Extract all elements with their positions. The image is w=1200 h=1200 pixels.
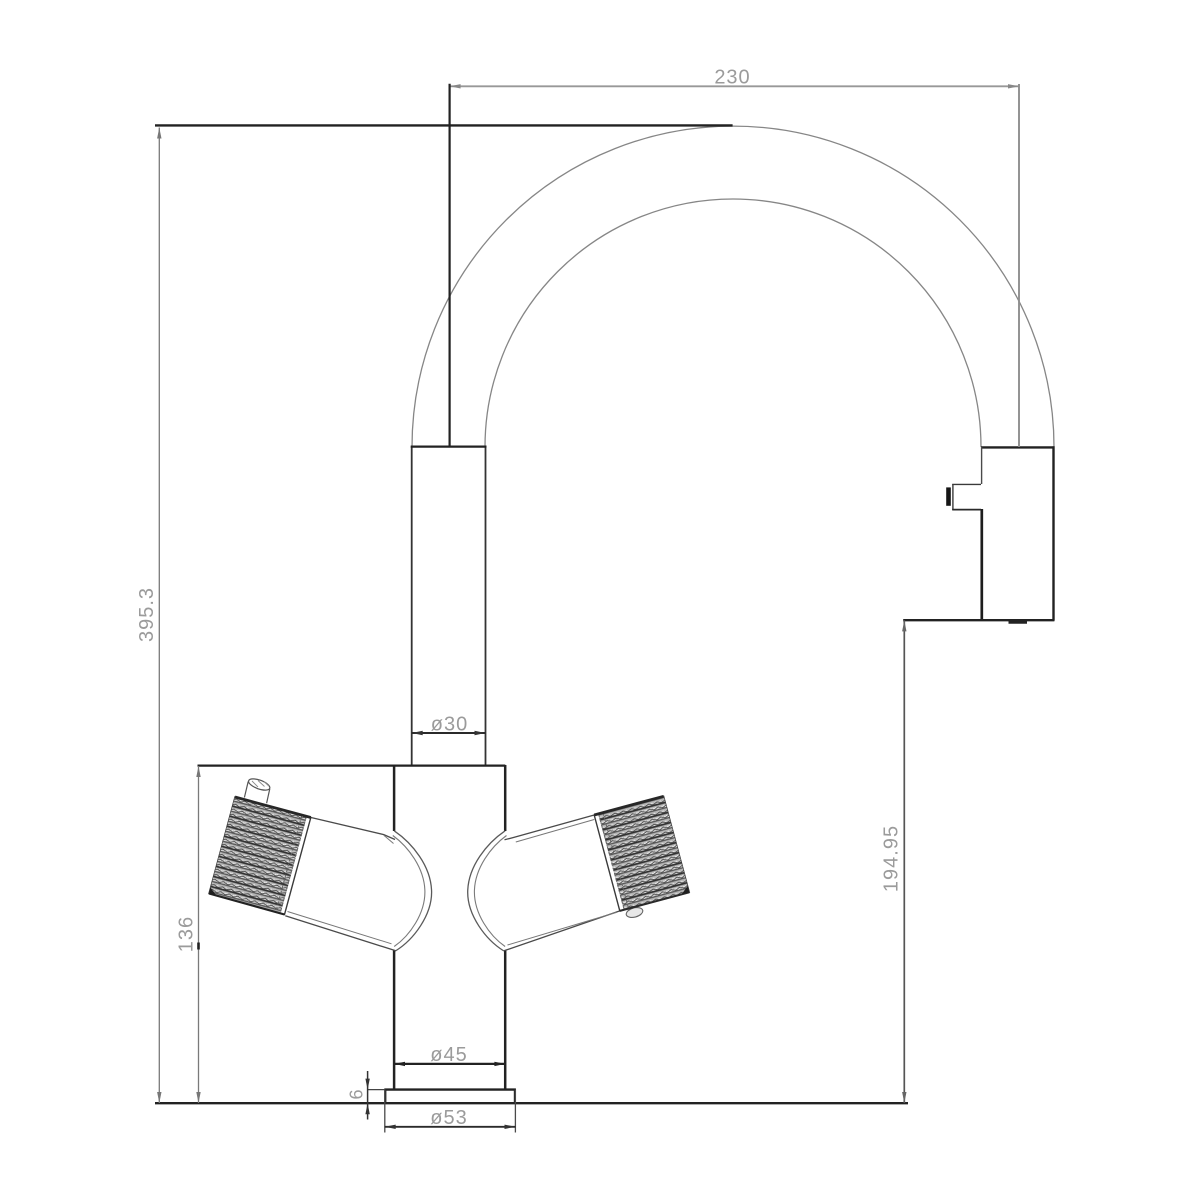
svg-text:ø45: ø45 xyxy=(430,1044,467,1066)
svg-text:395.3: 395.3 xyxy=(136,587,158,642)
svg-text:ø53: ø53 xyxy=(430,1107,467,1129)
svg-text:194.95: 194.95 xyxy=(881,825,903,892)
svg-text:ø30: ø30 xyxy=(431,714,468,736)
svg-text:136: 136 xyxy=(176,916,198,952)
svg-text:6: 6 xyxy=(347,1088,367,1099)
svg-text:230: 230 xyxy=(714,67,750,89)
